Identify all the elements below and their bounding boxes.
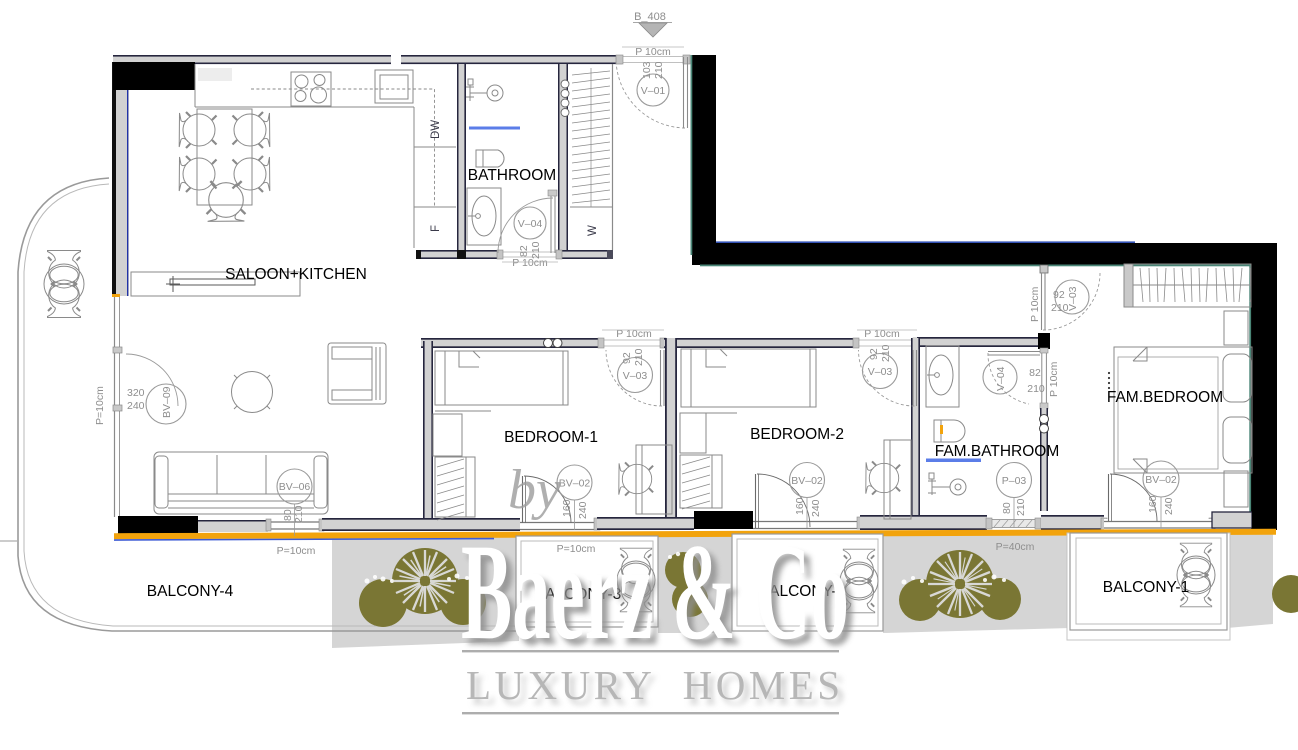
svg-text:P=10cm: P=10cm [277, 545, 316, 557]
svg-text:F: F [430, 225, 442, 232]
svg-text:P=10cm: P=10cm [94, 386, 106, 425]
svg-text:82: 82 [1029, 367, 1041, 379]
svg-text:P–03: P–03 [1002, 475, 1027, 487]
svg-text:P 10cm: P 10cm [635, 46, 671, 58]
svg-text:240: 240 [127, 400, 145, 412]
svg-text:V–04: V–04 [518, 218, 543, 230]
svg-text:320: 320 [127, 387, 145, 399]
svg-text:V–01: V–01 [641, 85, 666, 97]
svg-text:240: 240 [1163, 497, 1175, 515]
svg-text:BV–02: BV–02 [559, 478, 591, 490]
svg-text:P=40cm: P=40cm [996, 541, 1035, 553]
svg-text:BALCONY-4: BALCONY-4 [147, 583, 234, 600]
svg-text:BALCONY-1: BALCONY-1 [1103, 579, 1189, 596]
svg-text:210: 210 [1015, 498, 1027, 516]
svg-text:Baerz & Co: Baerz & Co [461, 515, 849, 668]
svg-text:160: 160 [1147, 495, 1159, 513]
svg-text:BV–09: BV–09 [161, 386, 173, 418]
svg-text:BEDROOM-2: BEDROOM-2 [750, 426, 844, 443]
svg-text:P 10cm: P 10cm [1048, 361, 1060, 397]
svg-text:BEDROOM-1: BEDROOM-1 [504, 429, 598, 446]
svg-text:210: 210 [653, 61, 665, 79]
svg-text:V–03: V–03 [623, 370, 648, 382]
svg-text:210: 210 [1027, 383, 1045, 395]
svg-text:V–03: V–03 [868, 366, 893, 378]
svg-text:BV–02: BV–02 [1145, 474, 1177, 486]
svg-text:FAM.BEDROOM: FAM.BEDROOM [1107, 389, 1223, 406]
svg-text:82: 82 [518, 245, 530, 257]
svg-text:by: by [508, 459, 561, 521]
svg-text:210: 210 [880, 344, 892, 362]
svg-text:92: 92 [868, 348, 880, 360]
svg-text:P 10cm: P 10cm [512, 257, 548, 269]
svg-text:80: 80 [1001, 502, 1013, 514]
svg-text:92: 92 [621, 352, 633, 364]
svg-text:SALOON+KITCHEN: SALOON+KITCHEN [225, 266, 367, 283]
svg-text:103: 103 [641, 61, 653, 79]
svg-text:W: W [587, 225, 599, 236]
svg-text:BV–02: BV–02 [791, 475, 823, 487]
svg-text:160: 160 [794, 497, 806, 515]
svg-text:DW: DW [430, 120, 442, 139]
svg-text:FAM.BATHROOM: FAM.BATHROOM [935, 443, 1060, 460]
svg-text:BV–06: BV–06 [279, 481, 311, 493]
svg-text:210: 210 [633, 348, 645, 366]
svg-text:BATHROOM: BATHROOM [468, 167, 556, 184]
svg-text:P 10cm: P 10cm [1029, 286, 1041, 322]
svg-text:210: 210 [1051, 302, 1069, 314]
svg-text:92: 92 [1053, 289, 1065, 301]
svg-text:B_408: B_408 [634, 11, 666, 23]
svg-text:V–04: V–04 [995, 366, 1007, 391]
svg-text:V–03: V–03 [1067, 286, 1079, 311]
